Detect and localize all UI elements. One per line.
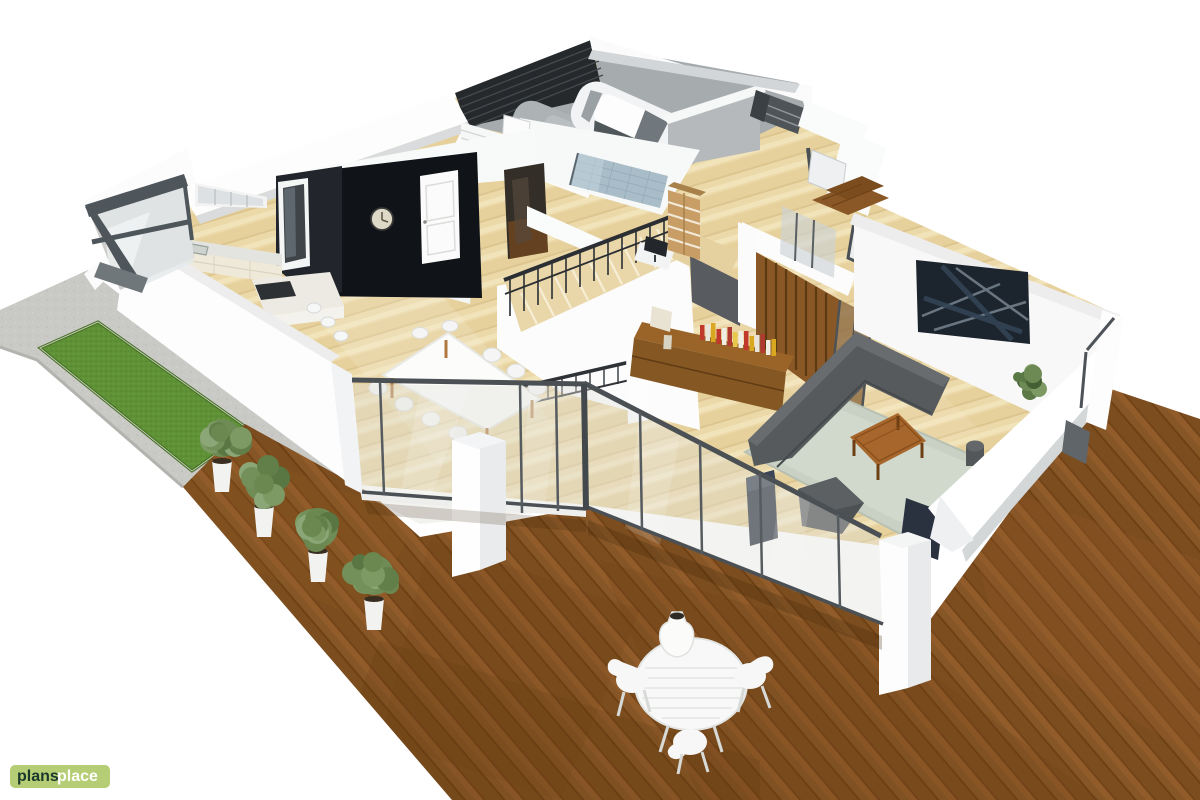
- svg-text:plans: plans: [17, 768, 59, 785]
- svg-text:place: place: [57, 768, 98, 785]
